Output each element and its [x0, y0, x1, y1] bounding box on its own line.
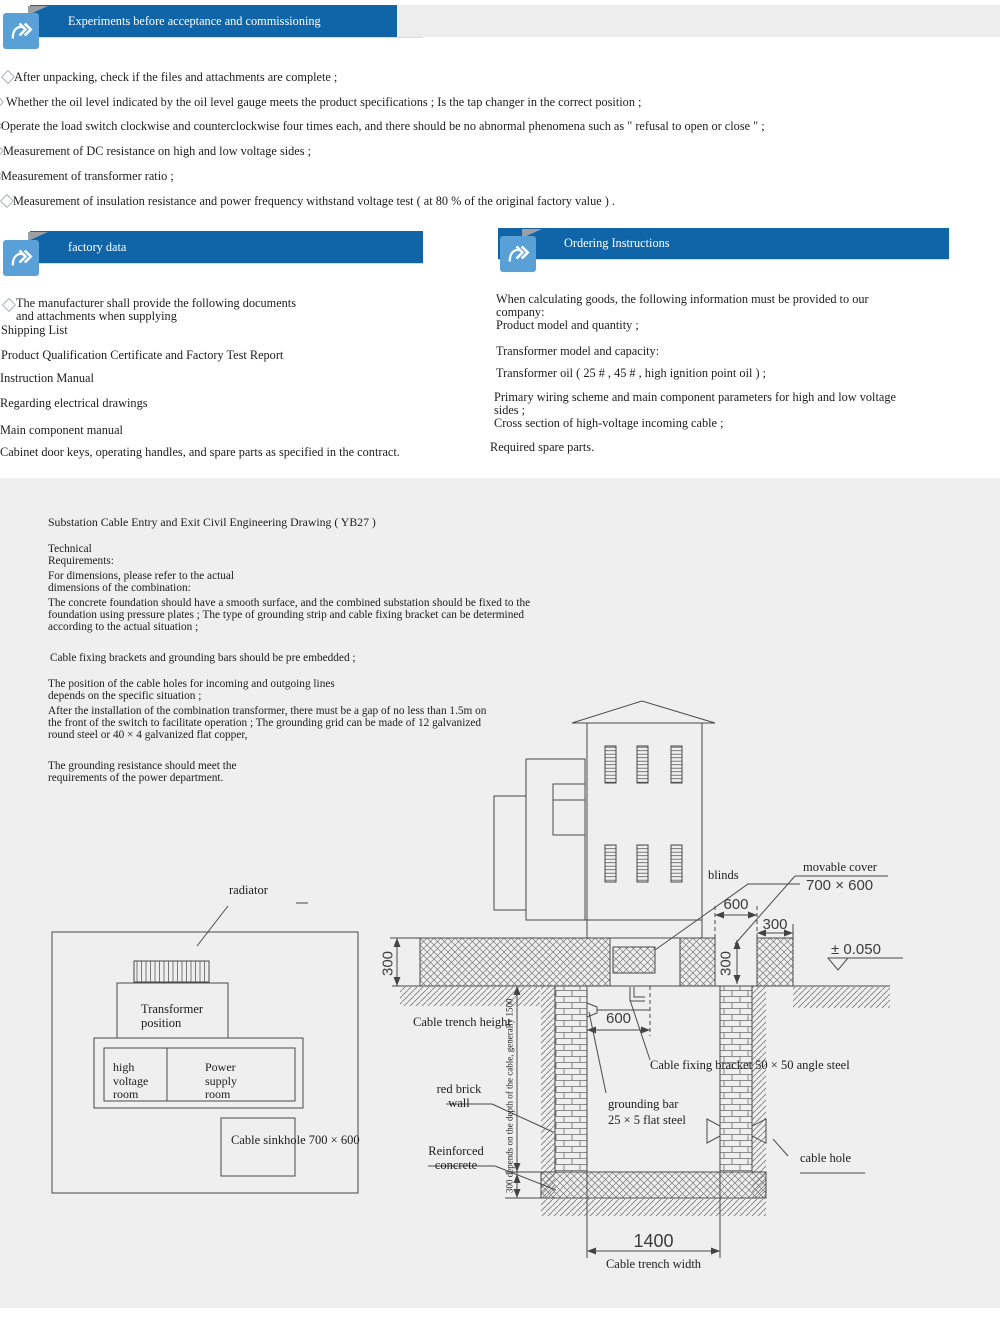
label-blinds: blinds — [708, 869, 739, 883]
label-trench-width: Cable trench width — [587, 1258, 720, 1272]
civil-engineering-diagram — [0, 0, 1000, 1320]
label-radiator: radiator — [229, 884, 268, 898]
label-cable-sinkhole: Cable sinkhole 700 × 600 — [231, 1134, 360, 1148]
label-cable-trench-height: Cable trench height — [413, 1016, 511, 1030]
share-arrow-icon — [3, 240, 39, 276]
dim-slab-edge: 300 — [757, 916, 793, 933]
dim-level: ± 0.050 — [831, 941, 881, 958]
dim-cover-depth: 300 — [718, 949, 735, 979]
label-grounding-bar: grounding bar 25 × 5 flat steel — [608, 1096, 686, 1128]
label-cable-hole: cable hole — [800, 1152, 851, 1166]
dim-slab-height: 300 — [380, 949, 397, 979]
dim-movable-cover-size: 700 × 600 — [806, 877, 873, 894]
dim-cover-opening: 600 — [715, 896, 757, 913]
label-red-brick-wall: red brick wall — [428, 1083, 490, 1110]
page: { "banners": { "experiments": "Experimen… — [0, 0, 1000, 1320]
label-depth-note: 300 depends on the depth of the cable, g… — [503, 996, 517, 1196]
label-transformer-position: Transformer position — [141, 1003, 203, 1030]
dim-inner-span: 600 — [587, 1010, 650, 1027]
share-arrow-icon — [500, 236, 536, 272]
label-cable-fixing-bracket: Cable fixing bracket 50 × 50 angle steel — [650, 1059, 850, 1073]
dim-trench-width: 1400 — [587, 1231, 720, 1252]
label-movable-cover: movable cover — [803, 861, 877, 875]
label-high-voltage-room: high voltage room — [113, 1061, 148, 1102]
floor-plan — [52, 903, 358, 1193]
label-power-supply-room: Power supply room — [205, 1061, 237, 1102]
label-reinforced-concrete: Reinforced concrete — [418, 1145, 494, 1172]
building-elevation — [494, 701, 715, 938]
share-arrow-icon — [3, 13, 39, 49]
